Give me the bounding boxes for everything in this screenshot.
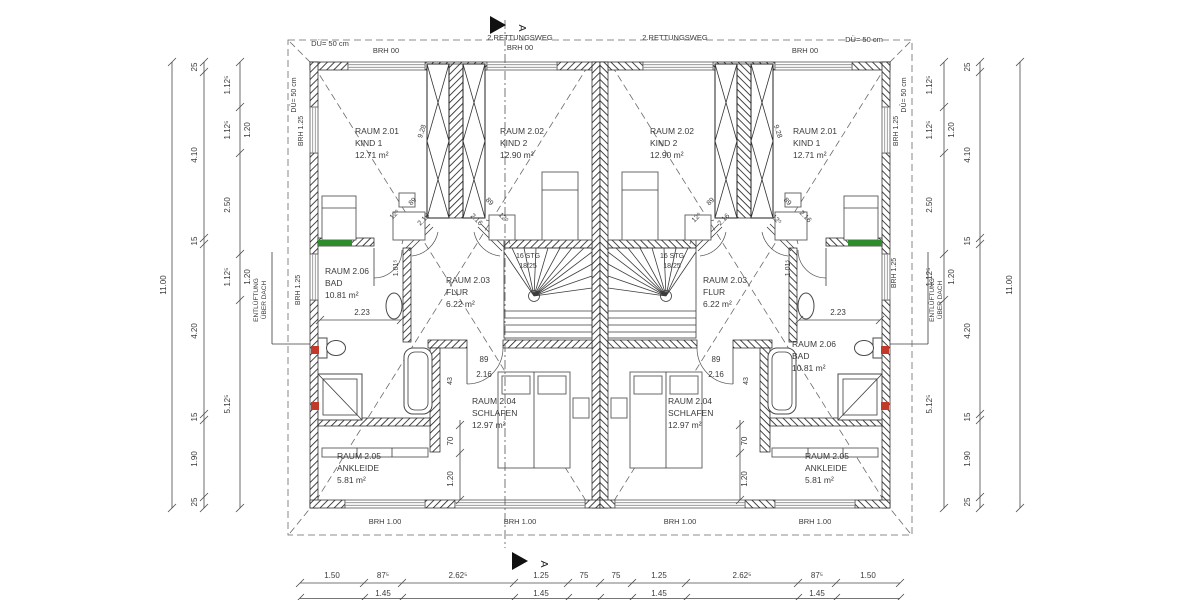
dim-label: 2.50	[925, 197, 934, 213]
room-area: 6.22 m²	[446, 299, 475, 309]
dim-label: 2.16	[476, 370, 492, 379]
room-name: RAUM 2.06	[325, 266, 369, 276]
room-name: RAUM 2.05	[337, 451, 381, 461]
dim-label: 43	[743, 377, 750, 385]
du-label: DÜ= 50 cm	[900, 77, 908, 112]
brh-label: BRH 1.25	[295, 275, 302, 305]
dim-label: 5.12⁵	[925, 395, 934, 414]
brh-label: BRH 00	[373, 46, 399, 55]
dim-label: 43	[447, 377, 454, 385]
lintel-mark	[318, 240, 352, 246]
room-area: 10.81 m²	[325, 290, 359, 300]
plumbing-mark	[881, 346, 889, 354]
dim-label: 70	[740, 436, 749, 445]
room-area: 12.71 m²	[793, 150, 827, 160]
plumbing-mark	[311, 402, 319, 410]
room-area: 12.97 m²	[472, 420, 506, 430]
dim-label: 2.62⁵	[733, 571, 752, 580]
dim-label: 1.25	[651, 571, 667, 580]
brh-label: BRH 00	[507, 43, 533, 52]
room-use: SCHLAFEN	[668, 408, 713, 418]
room-area: 6.22 m²	[703, 299, 732, 309]
du-label: DÜ= 50 cm	[290, 77, 298, 112]
stair-label: 18/25	[663, 263, 681, 270]
dim-label: 4.20	[963, 323, 972, 339]
room-name: RAUM 2.03	[703, 275, 747, 285]
room-use: ANKLEIDE	[337, 463, 379, 473]
du-label: DÜ= 50 cm	[845, 35, 883, 44]
room-use: ANKLEIDE	[805, 463, 847, 473]
dim-label: 2.23	[830, 308, 846, 317]
room-name: RAUM 2.05	[805, 451, 849, 461]
dim-label: 75	[580, 571, 589, 580]
room-name: RAUM 2.03	[446, 275, 490, 285]
dim-label: 25	[190, 62, 199, 71]
unit-geometry-left	[272, 42, 600, 533]
dim-label: 5.12⁵	[223, 395, 232, 414]
dim-label: 9.28	[772, 124, 783, 139]
dim-label: 1.12⁵	[223, 76, 232, 95]
brh-label: BRH 1.00	[664, 517, 697, 526]
section-label: A	[516, 24, 528, 31]
room-name: RAUM 2.06	[792, 339, 836, 349]
room-use: FLUR	[446, 287, 468, 297]
dim-label: 1.01⁵	[393, 260, 400, 277]
dim-label: 2.16	[708, 370, 724, 379]
dim-label: 4.10	[963, 147, 972, 163]
dim-label: 1.50	[324, 571, 340, 580]
room-use: KIND 1	[355, 138, 383, 148]
plumbing-mark	[881, 402, 889, 410]
room-area: 5.81 m²	[805, 475, 834, 485]
dim-label: 11.00	[159, 275, 168, 295]
brh-label: BRH 1.00	[799, 517, 832, 526]
dim-label: 2.50	[223, 197, 232, 213]
dim-label: 1.45	[375, 589, 391, 598]
roof-corner-diagonal	[290, 42, 312, 64]
washbasin	[386, 293, 402, 319]
dim-label: 1.90	[963, 451, 972, 467]
room-area: 5.81 m²	[337, 475, 366, 485]
floor-plan-canvas: DÜ= 50 cm BRH 00 2.RETTUNGSWEG BRH 00 2.…	[0, 0, 1200, 600]
wc-cistern	[318, 338, 327, 358]
room-area: 12.97 m²	[668, 420, 702, 430]
bath-fixtures	[318, 293, 432, 420]
brh-label: BRH 1.25	[298, 116, 305, 146]
dim-label: 1.12⁵	[223, 121, 232, 140]
dim-label: 2.62⁵	[449, 571, 468, 580]
dim-label: 75	[612, 571, 621, 580]
room-use: BAD	[325, 278, 342, 288]
dim-label: 1.12⁵	[925, 121, 934, 140]
brh-label: BRH 00	[792, 46, 818, 55]
room-name: RAUM 2.04	[472, 396, 516, 406]
dim-label: 1.90	[190, 451, 199, 467]
stair-label: 18/25	[519, 263, 537, 270]
vent-leader	[272, 252, 310, 344]
room-use: FLUR	[703, 287, 725, 297]
dimension-chain-left	[168, 58, 244, 512]
room-use: BAD	[792, 351, 809, 361]
room-use: KIND 2	[650, 138, 678, 148]
dim-label: 1.20	[243, 269, 252, 285]
wc	[327, 341, 346, 356]
dim-label: 25	[190, 497, 199, 506]
dim-label: 15	[963, 236, 972, 245]
dim-label: 89	[712, 355, 721, 364]
room-use: KIND 1	[793, 138, 821, 148]
floor-plan-page: DÜ= 50 cm BRH 00 2.RETTUNGSWEG BRH 00 2.…	[0, 0, 1200, 600]
dim-label: 15	[190, 236, 199, 245]
dim-label: 1.20	[740, 471, 749, 487]
dim-label: 1.45	[533, 589, 549, 598]
room-name: RAUM 2.04	[668, 396, 712, 406]
room-area: 12.90 m²	[500, 150, 534, 160]
section-marker-top	[490, 16, 506, 34]
vent-label: ÜBER DACH	[936, 281, 944, 320]
bed-kind2	[542, 172, 578, 240]
dim-label: 1.20	[446, 471, 455, 487]
room-area: 12.71 m²	[355, 150, 389, 160]
room-area: 10.81 m²	[792, 363, 826, 373]
room-name: RAUM 2.02	[650, 126, 694, 136]
bottom-annotations: BRH 1.00 BRH 1.00 BRH 1.00 BRH 1.00	[369, 517, 832, 526]
nightstand	[573, 398, 589, 418]
brh-label: BRH 1.25	[891, 258, 898, 288]
bottom-chain-labels: 1.50 87⁵ 2.62⁵ 1.25 75 75 1.25 2.62⁵ 87⁵…	[324, 571, 876, 598]
dim-label: 2.23	[354, 308, 370, 317]
roof-corner-diagonal	[290, 506, 312, 533]
room-name: RAUM 2.01	[793, 126, 837, 136]
dim-label: 1.20	[243, 122, 252, 138]
left-chain-labels: 11.00 25 4.10 15 4.20 15 1.90 25 1.12⁵ 1…	[159, 62, 252, 506]
dim-label: 1.45	[651, 589, 667, 598]
dim-label: 4.20	[190, 323, 199, 339]
dim-label: 89	[480, 355, 489, 364]
dim-label: 1.12⁵	[925, 76, 934, 95]
dim-label: 1.01⁵	[785, 260, 792, 277]
dim-label: 1.25	[533, 571, 549, 580]
stair-label: 16 STG	[516, 253, 540, 260]
plumbing-mark	[311, 346, 319, 354]
dim-label: 87⁵	[811, 571, 823, 580]
vent-label: ENTLÜFTUNG	[252, 278, 260, 322]
du-label: DÜ= 50 cm	[311, 39, 349, 48]
section-label: A	[538, 560, 550, 567]
pillow	[538, 376, 566, 394]
dim-label: 1.50	[860, 571, 876, 580]
dim-label: 1.45	[809, 589, 825, 598]
dim-label: 87⁵	[377, 571, 389, 580]
brh-label: BRH 1.00	[369, 517, 402, 526]
rescue-route-label: 2.RETTUNGSWEG	[642, 33, 708, 42]
dim-label: 70	[446, 436, 455, 445]
dim-label: 1.20	[947, 269, 956, 285]
dim-label: 9.28	[417, 124, 428, 139]
dim-label: 15	[963, 412, 972, 421]
room-name: RAUM 2.02	[500, 126, 544, 136]
brh-label: BRH 1.25	[893, 116, 900, 146]
pillow	[502, 376, 530, 394]
vent-label: ÜBER DACH	[260, 281, 268, 320]
lintel-mark	[848, 240, 882, 246]
brh-label: BRH 1.00	[504, 517, 537, 526]
section-marker-bottom	[512, 552, 528, 570]
unit-geometry-right-mirror	[600, 42, 928, 533]
dim-label: 25	[963, 497, 972, 506]
dim-label: 1.20	[947, 122, 956, 138]
stair-label: 16 STG	[660, 253, 684, 260]
dim-label: 1.12⁵	[925, 268, 934, 287]
room-use: KIND 2	[500, 138, 528, 148]
dim-label: 4.10	[190, 147, 199, 163]
dim-label: 1.12⁵	[223, 268, 232, 287]
rescue-route-label: 2.RETTUNGSWEG	[487, 33, 553, 42]
dim-label: 25	[963, 62, 972, 71]
bed-kind1	[322, 196, 356, 240]
dim-label: 11.00	[1005, 275, 1014, 295]
room-area: 12.90 m²	[650, 150, 684, 160]
stairs	[504, 248, 592, 338]
room-use: SCHLAFEN	[472, 408, 517, 418]
room-name: RAUM 2.01	[355, 126, 399, 136]
dim-label: 15	[190, 412, 199, 421]
